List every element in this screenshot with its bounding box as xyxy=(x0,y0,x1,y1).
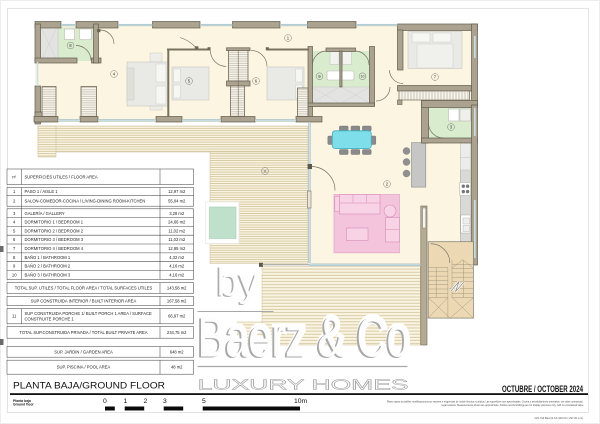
svg-text:143,58 m2: 143,58 m2 xyxy=(167,286,187,291)
svg-text:TOTAL SUP.CONSTRUIDA PRIVADA /: TOTAL SUP.CONSTRUIDA PRIVADA / TOTAL BUI… xyxy=(19,330,147,335)
svg-text:DORMITORIO 3 / BEDROOM 3: DORMITORIO 3 / BEDROOM 3 xyxy=(25,237,84,242)
svg-text:4,16 m2: 4,16 m2 xyxy=(169,264,185,269)
svg-text:3,28 m2: 3,28 m2 xyxy=(169,211,185,216)
svg-text:3: 3 xyxy=(163,398,167,405)
svg-text:4,32 m2: 4,32 m2 xyxy=(169,255,185,260)
svg-text:SUPERFICIES UTILES / FLOOR ARE: SUPERFICIES UTILES / FLOOR AREA xyxy=(25,174,98,179)
svg-text:5: 5 xyxy=(202,398,206,405)
svg-text:BAÑO 1 / BATHROOM 1: BAÑO 1 / BATHROOM 1 xyxy=(25,255,71,260)
svg-text:DORMITORIO 1 / BEDROOM 1: DORMITORIO 1 / BEDROOM 1 xyxy=(25,220,84,225)
svg-text:SUP CONSTRUIDA INTERIOR / BUIL: SUP CONSTRUIDA INTERIOR / BUILT INTERIOR… xyxy=(31,299,137,304)
svg-text:nº: nº xyxy=(12,174,16,179)
svg-text:LUXURY HOMES: LUXURY HOMES xyxy=(198,378,409,394)
svg-text:OCTUBRE / OCTOBER 2024: OCTUBRE / OCTOBER 2024 xyxy=(502,384,583,394)
svg-text:11,02 m2: 11,02 m2 xyxy=(168,237,186,242)
svg-text:legal reasons. Measurements sh: legal reasons. Measurements shown are ap… xyxy=(442,404,585,407)
svg-text:TOTAL SUP. UTILES / TOTAL FLOO: TOTAL SUP. UTILES / TOTAL FLOOR AREA / T… xyxy=(15,286,153,291)
svg-text:12,95 m2: 12,95 m2 xyxy=(168,246,186,251)
svg-text:11,02 m2: 11,02 m2 xyxy=(168,228,186,233)
svg-text:1: 1 xyxy=(124,398,128,405)
svg-text:4,16 m2: 4,16 m2 xyxy=(169,273,185,278)
svg-text:BAÑO 2 / BATHROOM 2: BAÑO 2 / BATHROOM 2 xyxy=(25,264,71,269)
svg-text:24,66 m2: 24,66 m2 xyxy=(168,220,186,225)
svg-text:234,75 m2: 234,75 m2 xyxy=(167,330,187,335)
svg-text:648 m2: 648 m2 xyxy=(170,349,185,354)
svg-text:GALERÍA / GALLERY: GALERÍA / GALLERY xyxy=(25,211,65,216)
svg-text:48 m2: 48 m2 xyxy=(171,365,183,370)
svg-text:DORMITORIO 4 / BEDROOM 4: DORMITORIO 4 / BEDROOM 4 xyxy=(25,246,84,251)
svg-text:55,04 m2: 55,04 m2 xyxy=(168,199,186,204)
svg-text:12,97 m2: 12,97 m2 xyxy=(168,189,186,194)
svg-text:SUP. JARDIN / GARDEN AREA: SUP. JARDIN / GARDEN AREA xyxy=(54,349,113,354)
svg-text:PLANTA BAJA/GROUND FLOOR: PLANTA BAJA/GROUND FLOOR xyxy=(13,381,165,391)
svg-text:PASO 1 / AISLE 1: PASO 1 / AISLE 1 xyxy=(25,189,59,194)
svg-text:167,58 m2: 167,58 m2 xyxy=(167,299,187,304)
svg-text:SUP. PISCINA / POOL AREA: SUP. PISCINA / POOL AREA xyxy=(57,365,111,370)
svg-text:CONSTRUITE PORCHE 1: CONSTRUITE PORCHE 1 xyxy=(25,316,75,321)
svg-text:Plano sujeto a posibles modifi: Plano sujeto a posibles modificaciones p… xyxy=(387,400,583,403)
svg-text:Baerz & Co: Baerz & Co xyxy=(198,306,410,370)
svg-text:by: by xyxy=(217,261,259,305)
svg-text:10: 10 xyxy=(361,75,365,79)
svg-text:SALON-COMEDOR-COCINA / LIVING: SALON-COMEDOR-COCINA / LIVING-DINING ROO… xyxy=(25,199,146,204)
svg-text:10m: 10m xyxy=(294,398,308,405)
svg-text:BAÑO 3 / BATHROOM 3: BAÑO 3 / BATHROOM 3 xyxy=(25,273,71,278)
svg-text:2: 2 xyxy=(144,398,148,405)
svg-text:11: 11 xyxy=(263,169,267,173)
svg-text:G01 Taft Baezrd A4 (420.00 x 2: G01 Taft Baezrd A4 (420.00 x 297.00 mm) xyxy=(534,416,583,420)
svg-text:0: 0 xyxy=(103,398,107,405)
svg-text:11: 11 xyxy=(12,314,17,319)
svg-text:Ground floor: Ground floor xyxy=(13,403,34,407)
svg-text:66,97 m2: 66,97 m2 xyxy=(168,314,186,319)
svg-text:DORMITORIO 2 / BEDROOM 2: DORMITORIO 2 / BEDROOM 2 xyxy=(25,228,84,233)
svg-text:10: 10 xyxy=(12,273,17,278)
